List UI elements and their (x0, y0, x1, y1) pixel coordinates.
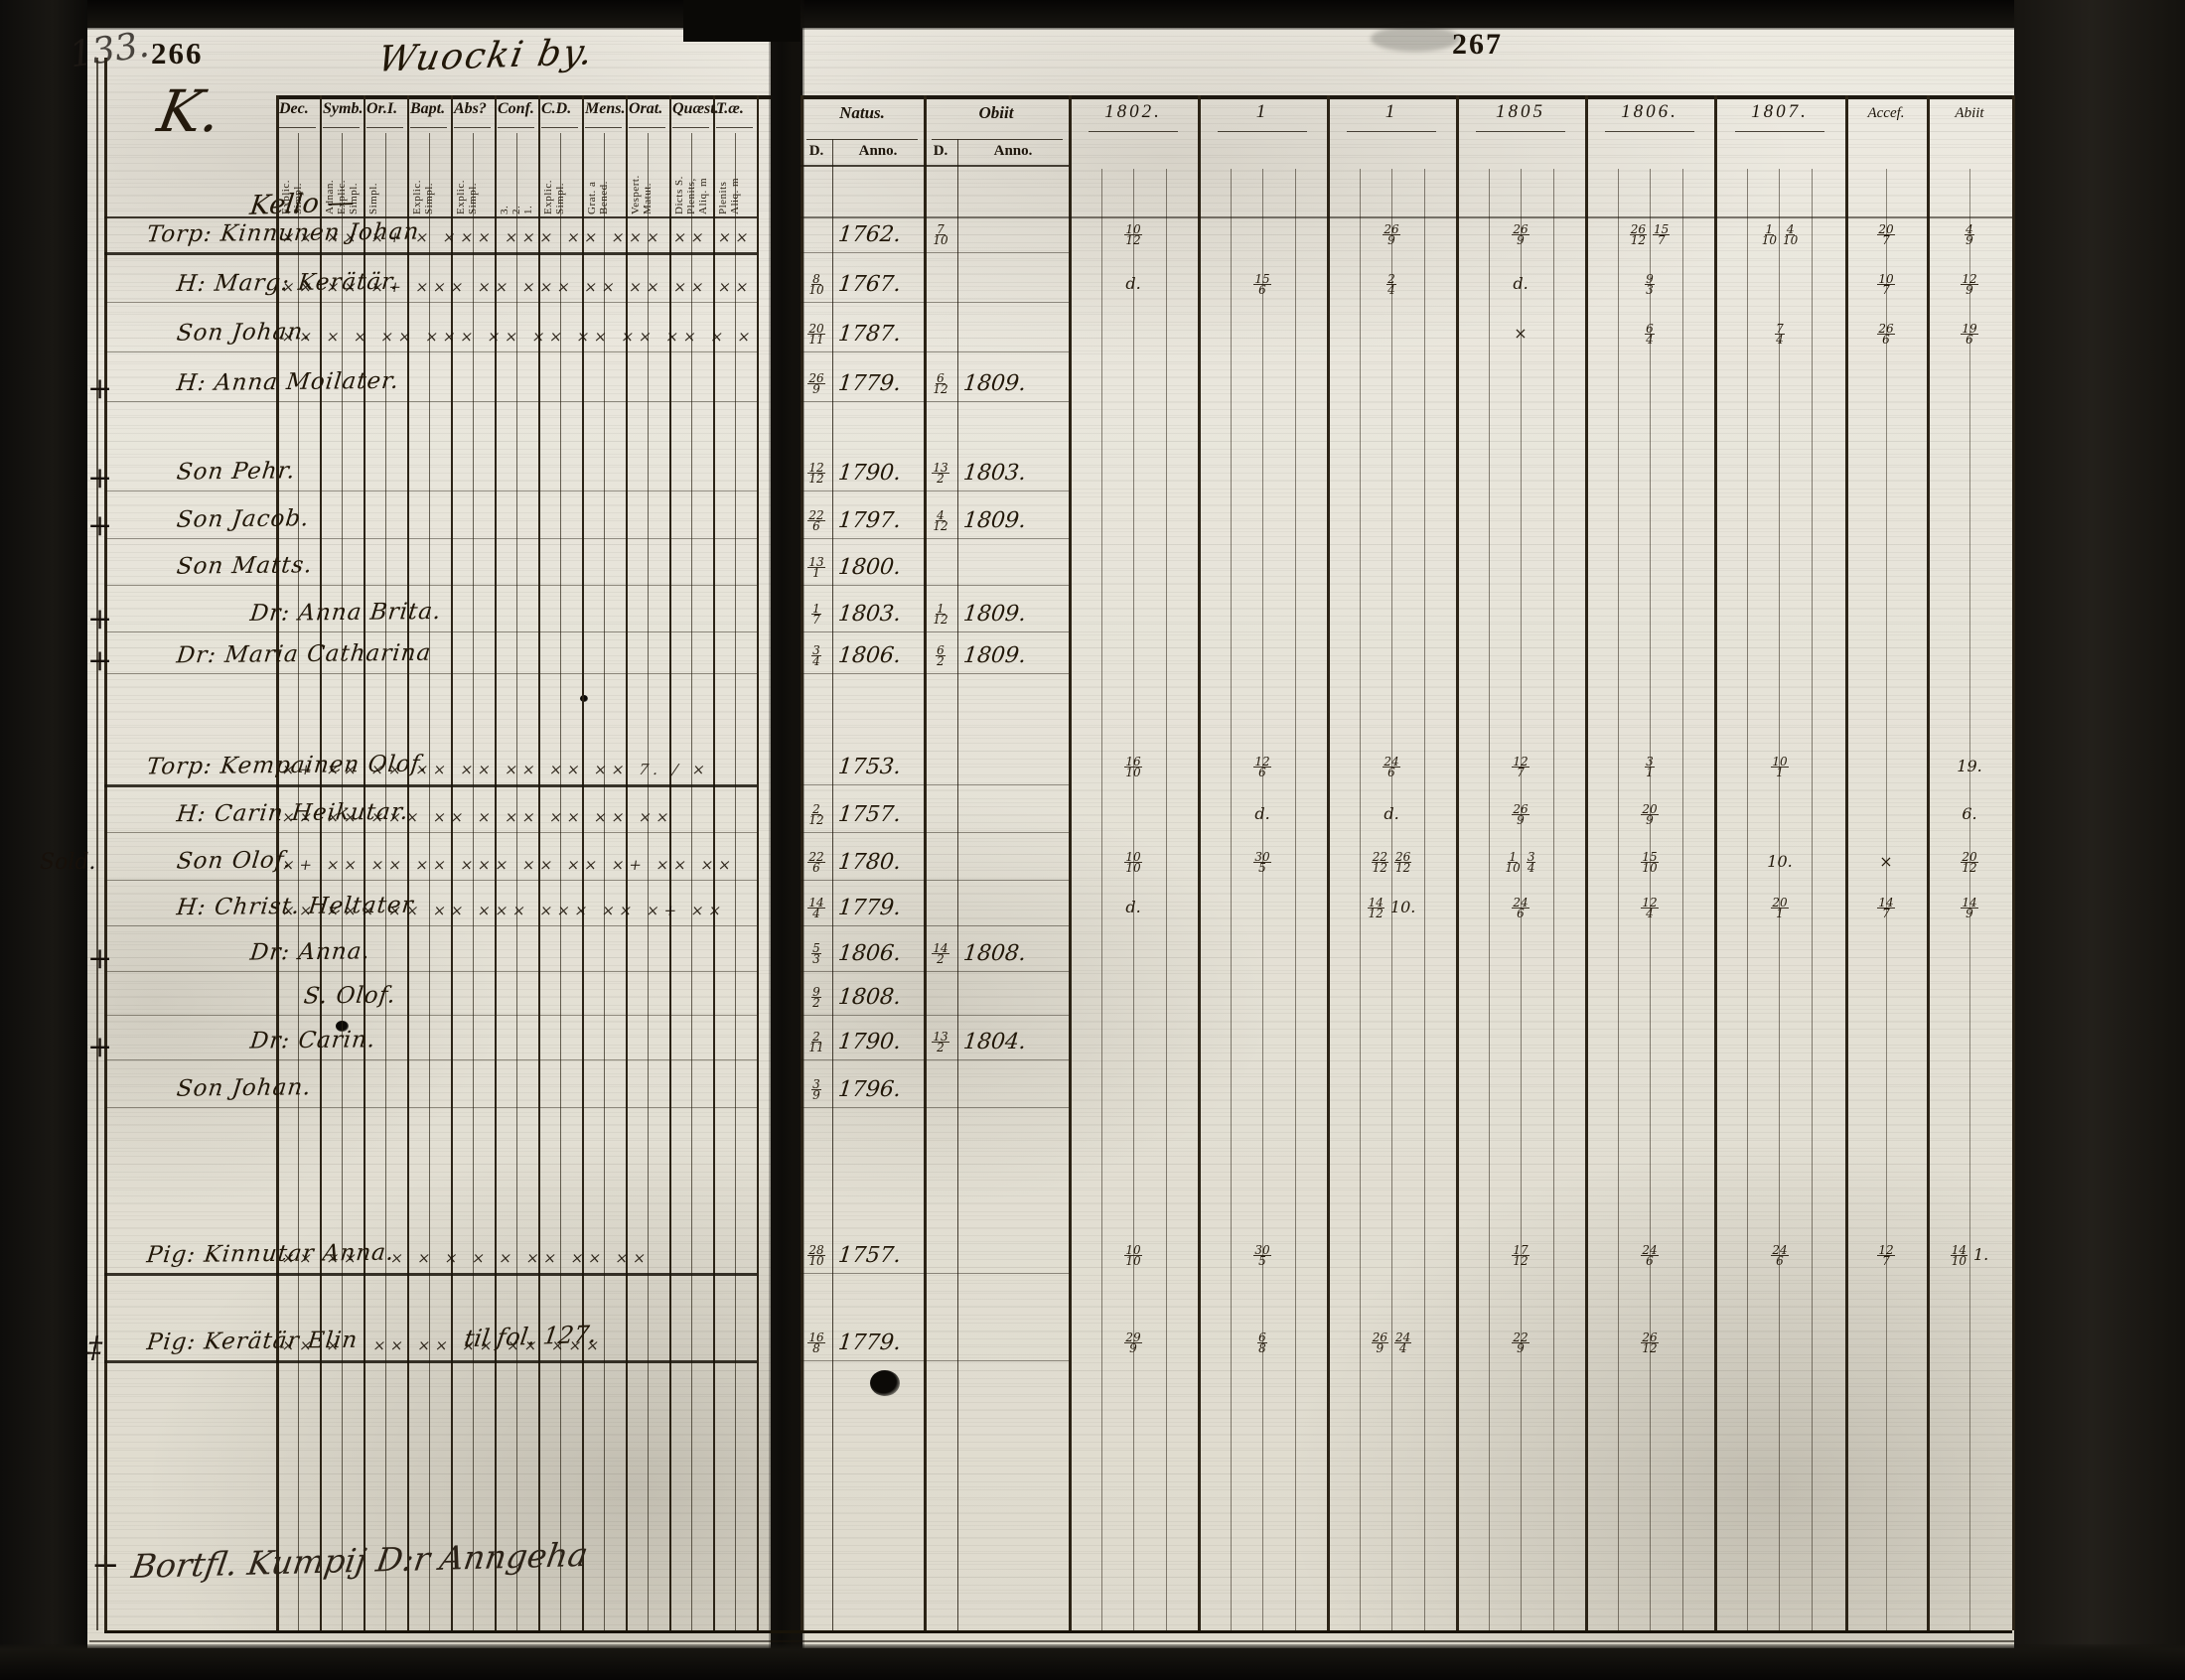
natus-underline (801, 351, 1069, 352)
accessit-header: Accef. (1845, 105, 1927, 122)
date-fraction: 144 (807, 898, 824, 918)
year-cell-entry: 31 (1585, 757, 1714, 777)
date-fraction: 246 (1641, 1245, 1658, 1266)
natus-day: 226 (801, 852, 832, 873)
year-cell-entry: 22122612 (1327, 852, 1456, 873)
date-fraction: 269 (1372, 1332, 1388, 1353)
column-subheader: Explic. (411, 135, 423, 214)
date-text: × (1879, 852, 1892, 871)
row-rule (104, 673, 757, 674)
year-cell-entry: 1010 (1069, 852, 1198, 873)
column-subheader: 3. (499, 135, 510, 214)
right-body-top-rule (801, 216, 2012, 218)
natus-day: 2810 (801, 1245, 832, 1266)
date-fraction: 107 (1877, 274, 1894, 295)
natus-year: 1806. (837, 643, 903, 668)
year-cell-entry: 1712 (1456, 1245, 1585, 1266)
row-name: Son Jacob. (175, 505, 311, 532)
year-cell-entry: 127 (1456, 757, 1585, 777)
date-text: d. (1254, 804, 1269, 823)
year-cell-entry: 246 (1456, 898, 1585, 918)
column-subheader: Explic. (542, 135, 554, 214)
date-fraction: 1010 (1124, 1245, 1141, 1266)
date-fraction: 612 (933, 373, 947, 394)
abiit-entry: 19. (1927, 757, 2012, 775)
column-header-underline (279, 127, 316, 128)
date-text: d. (1125, 274, 1140, 293)
natus-day: 17 (801, 604, 832, 625)
natus-year: 1767. (837, 272, 903, 297)
left-subcolumn-rule (385, 133, 386, 1630)
obiit-day: 62 (924, 645, 957, 666)
year-cell-entry: 209 (1585, 804, 1714, 825)
year-cell-entry: 1510 (1585, 852, 1714, 873)
natus-day: 211 (801, 1032, 832, 1052)
left-subcolumn-rule (298, 133, 299, 1630)
column-subheader: Adnan. (324, 135, 336, 214)
date-fraction: 211 (808, 1032, 823, 1052)
abiit-entry: 14101. (1927, 1245, 2012, 1266)
date-text: 1. (1973, 1245, 1988, 1264)
date-fraction: 156 (1253, 274, 1270, 295)
date-fraction: 226 (807, 510, 824, 531)
date-fraction: 2011 (807, 324, 824, 345)
abiit-entry: 6. (1927, 804, 2012, 823)
column-header-underline (323, 127, 360, 128)
date-fraction: 31 (1645, 757, 1655, 777)
year-header-underline (1218, 131, 1307, 132)
row-communion-marks: ×× ×× ××× ×× × ×× ×× ×× ×× (281, 808, 755, 826)
date-fraction: 110 (1506, 852, 1521, 873)
date-fraction: 412 (933, 510, 947, 531)
year-column-header: 1805 (1456, 101, 1585, 123)
accessit-entry: 207 (1845, 224, 1927, 245)
date-fraction: 2612 (1630, 224, 1647, 245)
year-cell-entry: 64 (1585, 324, 1714, 345)
year-cell-entry: 1610 (1069, 757, 1198, 777)
column-header: C.D. (541, 100, 571, 118)
row-name: Dr: Carin. (248, 1027, 376, 1053)
natus-anno-subheader: Anno. (832, 143, 924, 160)
date-fraction: 110 (1762, 224, 1777, 245)
column-subheader: Explic. (336, 135, 348, 214)
natus-underline (801, 971, 1069, 972)
accessit-entry: 127 (1845, 1245, 1927, 1266)
column-header: Quæst. (672, 100, 719, 118)
date-fraction: 1010 (1124, 852, 1141, 873)
date-fraction: 410 (1783, 224, 1798, 245)
natus-year: 1779. (837, 371, 903, 396)
natus-underline (801, 585, 1069, 586)
date-fraction: 129 (1961, 274, 1977, 295)
date-fraction: 2810 (807, 1245, 824, 1266)
natus-underline (801, 832, 1069, 833)
obiit-header: Obiit (924, 103, 1069, 123)
date-fraction: 53 (811, 943, 821, 964)
date-fraction: 127 (1512, 757, 1529, 777)
natus-year: 1796. (837, 1077, 903, 1102)
year-cell-entry: 74 (1714, 324, 1845, 345)
date-fraction: 269 (1383, 224, 1399, 245)
natus-year: 1806. (837, 941, 903, 966)
row-rule (104, 880, 757, 881)
column-header: Orat. (629, 100, 662, 118)
row-rule (104, 784, 757, 787)
year-cell-entry: 93 (1585, 274, 1714, 295)
column-header: Symb. (323, 100, 363, 118)
row-rule (104, 252, 757, 255)
column-subheader: Plenits (717, 135, 729, 214)
left-margin-rule-outer (96, 58, 98, 1630)
column-header-underline (629, 127, 665, 128)
date-fraction: 269 (1512, 224, 1529, 245)
column-header-underline (366, 127, 403, 128)
row-communion-marks: ×× ××× ×× ×× ××× ××× ×× ×+ ×× (281, 902, 755, 919)
natus-year: 1800. (837, 555, 903, 580)
date-fraction: 2212 (1372, 852, 1388, 873)
natus-underline (801, 1059, 1069, 1060)
natus-day: 212 (801, 804, 832, 825)
date-fraction: 2612 (1641, 1332, 1658, 1353)
year-cell-entry: 269 (1456, 224, 1585, 245)
obiit-year: 1809. (962, 602, 1028, 627)
natus-obiit-divider (924, 95, 927, 1630)
left-subcolumn-rule (735, 133, 736, 1630)
year-cell-entry: 246 (1714, 1245, 1845, 1266)
year-cell-entry: d. (1069, 274, 1198, 293)
row-name: Dr: Anna. (248, 938, 371, 965)
obiit-day: 142 (924, 943, 957, 964)
date-fraction: 62 (936, 645, 946, 666)
column-header: T.æ. (716, 100, 744, 118)
natus-underline (801, 538, 1069, 539)
date-fraction: 17 (811, 604, 821, 625)
natus-year: 1790. (837, 461, 903, 486)
accessit-entry: × (1845, 852, 1927, 871)
obiit-year: 1803. (962, 461, 1028, 486)
accessit-entry: 107 (1845, 274, 1927, 295)
bottom-page-rule (89, 1640, 2014, 1642)
natus-underline (801, 1273, 1069, 1274)
row-rule (104, 832, 757, 833)
row-name: H: Anna Moilater. (175, 368, 400, 396)
date-fraction: 810 (808, 274, 823, 295)
column-header-underline (541, 127, 578, 128)
natus-underline (801, 784, 1069, 785)
left-table-top-rule (278, 95, 771, 99)
column-subheader: 2. (510, 135, 522, 214)
column-header-underline (454, 127, 491, 128)
left-subcolumn-rule (342, 133, 343, 1630)
column-subheader: Vespert. (630, 135, 642, 214)
column-header: Dec. (279, 100, 309, 118)
column-header: Bapt. (410, 100, 445, 118)
natus-day: 53 (801, 943, 832, 964)
column-header-underline (672, 127, 709, 128)
date-fraction: 124 (1641, 898, 1658, 918)
row-name: Son Pehr. (175, 458, 296, 485)
row-rule (104, 490, 757, 491)
natus-day: 39 (801, 1079, 832, 1100)
column-subheader: Simpl. (423, 135, 435, 214)
row-name: Dr: Anna Brita. (248, 599, 442, 627)
column-subheader: 1. (522, 135, 534, 214)
row-rule (104, 1273, 757, 1276)
row-name: S. Olof. (302, 983, 397, 1010)
year-cell-entry: 269244 (1327, 1332, 1456, 1353)
row-name: Dr: Maria Catharina (175, 640, 432, 669)
date-fraction: 710 (933, 224, 947, 245)
date-fraction: 196 (1961, 324, 1977, 345)
right-column-rule (2012, 95, 2015, 1630)
year-cell-entry: 246 (1585, 1245, 1714, 1266)
year-cell-entry: 24 (1327, 274, 1456, 295)
natus-year: 1762. (837, 222, 903, 247)
date-fraction: 132 (932, 463, 948, 484)
year-cell-entry: 201 (1714, 898, 1845, 918)
left-margin-rule (104, 58, 107, 1630)
natus-year: 1779. (837, 1330, 903, 1355)
date-fraction: 93 (1645, 274, 1655, 295)
year-header-underline (1735, 131, 1824, 132)
date-fraction: 207 (1877, 224, 1894, 245)
abiit-header: Abiit (1927, 105, 2012, 122)
date-fraction: 246 (1771, 1245, 1788, 1266)
left-subcolumn-rule (516, 133, 517, 1630)
date-fraction: 64 (1645, 324, 1655, 345)
natus-day: 168 (801, 1332, 832, 1353)
accessit-entry: 266 (1845, 324, 1927, 345)
date-fraction: 1510 (1641, 852, 1658, 873)
year-header-underline (1347, 131, 1436, 132)
date-fraction: 1212 (807, 463, 824, 484)
year-cell-entry: 2612 (1585, 1332, 1714, 1353)
natus-day: 144 (801, 898, 832, 918)
left-subcolumn-rule (429, 133, 430, 1630)
date-fraction: 112 (933, 604, 947, 625)
year-cell-entry: 2612157 (1585, 224, 1714, 245)
column-subheader: Simpl. (348, 135, 360, 214)
date-fraction: 1410 (1951, 1245, 1967, 1266)
obiit-day: 112 (924, 604, 957, 625)
date-fraction: 266 (1877, 324, 1894, 345)
date-fraction: 147 (1877, 898, 1894, 918)
natus-day: 810 (801, 274, 832, 295)
date-text: d. (1513, 274, 1528, 293)
date-fraction: 246 (1383, 757, 1399, 777)
row-rule (104, 302, 757, 303)
column-subheader: Aliq. m (697, 135, 709, 214)
date-fraction: 212 (808, 804, 823, 825)
year-cell-entry: 124 (1585, 898, 1714, 918)
natus-underline (801, 252, 1069, 253)
left-subheader-rule (104, 216, 757, 218)
year-subcolumn-rule (1262, 169, 1263, 1630)
date-text: 19. (1957, 757, 1981, 775)
year-column-header: 1807. (1714, 101, 1845, 123)
abiit-entry: 49 (1927, 224, 2012, 245)
scanned-document: 133. 266 Wuocki by. 267 K. Kello — + Bor… (0, 0, 2185, 1680)
column-header: Mens. (585, 100, 625, 118)
natus-year: 1757. (837, 802, 903, 827)
natus-day-divider (832, 139, 833, 1630)
column-subheader: Simpl. (367, 135, 379, 214)
row-rule (104, 538, 757, 539)
date-fraction: 2012 (1961, 852, 1977, 873)
date-fraction: 1012 (1124, 224, 1141, 245)
date-fraction: 305 (1253, 852, 1270, 873)
natus-underline (801, 401, 1069, 402)
row-rule (104, 585, 757, 586)
row-rule (104, 1360, 757, 1363)
year-cell-entry: 126 (1198, 757, 1327, 777)
date-fraction: 49 (1965, 224, 1974, 245)
year-cell-entry: d. (1198, 804, 1327, 823)
date-fraction: 132 (932, 1032, 948, 1052)
year-header-underline (1605, 131, 1694, 132)
date-fraction: 269 (1512, 804, 1529, 825)
natus-underline (801, 631, 1069, 632)
obiit-header-underline (932, 139, 1063, 140)
date-fraction: 299 (1124, 1332, 1141, 1353)
obiit-day: 412 (924, 510, 957, 531)
year-cell-entry: 141210. (1327, 898, 1456, 918)
year-cell-entry: × (1456, 324, 1585, 343)
date-fraction: 34 (811, 645, 821, 666)
right-table-top-rule (801, 95, 2014, 99)
obiit-year: 1809. (962, 508, 1028, 533)
year-cell-entry: 1012 (1069, 224, 1198, 245)
row-name: Son Johan. (175, 1074, 313, 1101)
natus-day: 269 (801, 373, 832, 394)
year-cell-entry: 110410 (1714, 224, 1845, 245)
row-name: Son Olof. (175, 847, 293, 874)
right-subheader-rule (801, 165, 1069, 167)
year-cell-entry: 305 (1198, 852, 1327, 873)
natus-header-underline (806, 139, 918, 140)
date-text: d. (1125, 898, 1140, 916)
year-cell-entry: 101 (1714, 757, 1845, 777)
natus-underline (801, 1360, 1069, 1361)
date-text: 10. (1767, 852, 1792, 871)
column-subheader: Simpl. (467, 135, 479, 214)
date-fraction: 142 (932, 943, 948, 964)
natus-underline (801, 673, 1069, 674)
year-column-header: 1 (1198, 101, 1327, 123)
row-name: Son Matts. (175, 552, 314, 579)
column-subheader: Grat. a (586, 135, 598, 214)
obiit-day: 612 (924, 373, 957, 394)
natus-day-subheader: D. (801, 143, 832, 160)
natus-year: 1753. (837, 755, 903, 779)
year-column-header: 1802. (1069, 101, 1198, 123)
date-fraction: 1412 (1368, 898, 1384, 918)
natus-day: 92 (801, 987, 832, 1008)
abiit-entry: 196 (1927, 324, 2012, 345)
obiit-day: 132 (924, 463, 957, 484)
column-subheader: Explic. (455, 135, 467, 214)
column-subheader: Matut. (642, 135, 654, 214)
year-cell-entry: 156 (1198, 274, 1327, 295)
natus-day: 131 (801, 557, 832, 578)
natus-header: Natus. (801, 103, 924, 123)
year-cell-entry: 246 (1327, 757, 1456, 777)
row-note: til fol. 127. (463, 1321, 599, 1353)
bottom-table-rule (104, 1630, 2012, 1633)
column-subheader: Plenits, (685, 135, 697, 214)
date-fraction: 229 (1512, 1332, 1529, 1353)
natus-year: 1797. (837, 508, 903, 533)
row-rule (104, 631, 757, 632)
left-subcolumn-rule (560, 133, 561, 1630)
obiit-day: 710 (924, 224, 957, 245)
natus-year: 1790. (837, 1030, 903, 1054)
row-margin-mark: Sold. (40, 850, 95, 875)
year-cell-entry: d. (1327, 804, 1456, 823)
column-header: Abs? (454, 100, 487, 118)
obiit-day: 132 (924, 1032, 957, 1052)
year-cell-entry: 1010 (1069, 1245, 1198, 1266)
year-cell-entry: 269 (1456, 804, 1585, 825)
date-fraction: 209 (1641, 804, 1658, 825)
abiit-entry: 2012 (1927, 852, 2012, 873)
obiit-day-divider (957, 139, 958, 1630)
ledger-grid: Dec.Explic.Simpl.Symb.Adnan.Explic.Simpl… (0, 0, 2185, 1680)
date-text: × (1514, 324, 1527, 343)
natus-underline (801, 925, 1069, 926)
date-text: 10. (1390, 898, 1415, 916)
obiit-year: 1809. (962, 371, 1028, 396)
year-cell-entry: 68 (1198, 1332, 1327, 1353)
year-header-underline (1476, 131, 1565, 132)
date-fraction: 92 (811, 987, 821, 1008)
date-fraction: 2612 (1394, 852, 1411, 873)
row-rule (104, 925, 757, 926)
year-cell-entry: 299 (1069, 1332, 1198, 1353)
date-fraction: 226 (807, 852, 824, 873)
row-rule (104, 1107, 757, 1108)
date-fraction: 168 (807, 1332, 824, 1353)
row-rule (104, 971, 757, 972)
date-fraction: 39 (811, 1079, 821, 1100)
obiit-year: 1804. (962, 1030, 1028, 1054)
row-communion-marks: ×+ ×× ×× ×× ×× ×× ×× ×× 7. / × (281, 761, 755, 778)
column-subheader: Simpl. (292, 135, 304, 214)
date-fraction: 101 (1771, 757, 1788, 777)
abiit-entry: 149 (1927, 898, 2012, 918)
year-subcolumn-rule (1231, 169, 1232, 1630)
natus-year: 1757. (837, 1243, 903, 1268)
date-fraction: 24 (1386, 274, 1396, 295)
natus-day: 226 (801, 510, 832, 531)
natus-underline (801, 1015, 1069, 1016)
natus-year: 1780. (837, 850, 903, 875)
column-header: Conf. (498, 100, 534, 118)
year-subcolumn-rule (1295, 169, 1296, 1630)
natus-day: 1212 (801, 463, 832, 484)
date-fraction: 246 (1512, 898, 1529, 918)
year-header-underline (1089, 131, 1178, 132)
date-fraction: 305 (1253, 1245, 1270, 1266)
natus-underline (801, 302, 1069, 303)
natus-year: 1787. (837, 322, 903, 347)
row-rule (104, 401, 757, 402)
year-cell-entry: 11034 (1456, 852, 1585, 873)
year-column-header: 1806. (1585, 101, 1714, 123)
column-subheader: Bened. (598, 135, 610, 214)
year-cell-entry: 229 (1456, 1332, 1585, 1353)
natus-year: 1779. (837, 896, 903, 920)
